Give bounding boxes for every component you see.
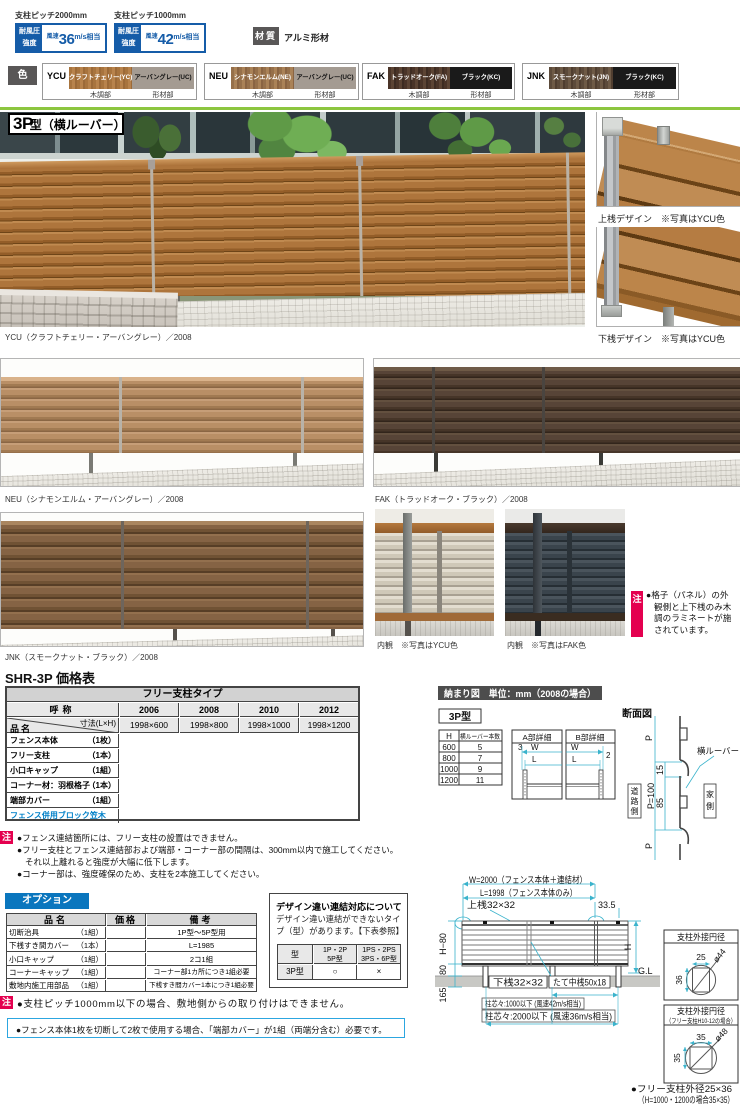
svg-text:柱芯々:1000以下 (風速42m/s相当): 柱芯々:1000以下 (風速42m/s相当): [485, 999, 581, 1009]
svg-text:下桟32×32: 下桟32×32: [493, 977, 543, 988]
svg-text:G.L: G.L: [638, 966, 653, 976]
svg-text:1000: 1000: [440, 765, 458, 774]
svg-text:L: L: [532, 755, 537, 764]
svg-text:H: H: [446, 732, 452, 741]
svg-text:H−80: H−80: [438, 933, 448, 955]
svg-text:W: W: [571, 743, 579, 752]
svg-text:側: 側: [706, 801, 714, 811]
svg-text:（フリー支柱H10-12の場合）: （フリー支柱H10-12の場合）: [666, 1016, 736, 1025]
svg-text:35: 35: [696, 1032, 706, 1042]
svg-text:1200: 1200: [440, 776, 458, 785]
svg-text:●フリー支柱外径25×36: ●フリー支柱外径25×36: [631, 1083, 732, 1094]
svg-text:33.5: 33.5: [598, 900, 616, 910]
svg-text:上桟32×32: 上桟32×32: [467, 899, 515, 910]
svg-text:11: 11: [476, 776, 485, 785]
svg-text:L: L: [572, 755, 577, 764]
svg-text:道: 道: [631, 786, 639, 796]
svg-text:15: 15: [655, 765, 665, 775]
svg-text:36: 36: [674, 975, 684, 985]
svg-text:5: 5: [478, 743, 483, 752]
svg-text:H: H: [623, 944, 633, 951]
svg-text:W=2000（フェンス本体＋連結材）: W=2000（フェンス本体＋連結材）: [469, 874, 587, 885]
svg-text:納まり図 単位：mm（2008の場合）: 納まり図 単位：mm（2008の場合）: [444, 688, 596, 700]
svg-text:P: P: [644, 735, 654, 741]
svg-text:家: 家: [706, 789, 714, 799]
svg-text:W: W: [531, 743, 539, 752]
svg-text:80: 80: [438, 965, 448, 975]
svg-text:支柱外接円径: 支柱外接円径: [677, 1006, 725, 1016]
svg-text:柱芯々:2000以下 (風速36m/s相当): 柱芯々:2000以下 (風速36m/s相当): [485, 1011, 612, 1022]
svg-text:85: 85: [655, 798, 665, 808]
svg-text:7: 7: [478, 754, 483, 763]
svg-text:（H=1000・1200の場合35×35）: （H=1000・1200の場合35×35）: [638, 1094, 734, 1105]
svg-text:断面図: 断面図: [622, 707, 652, 720]
svg-text:9: 9: [478, 765, 483, 774]
svg-text:L=1998（フェンス本体のみ）: L=1998（フェンス本体のみ）: [480, 887, 577, 898]
svg-text:P: P: [644, 843, 654, 849]
svg-text:路: 路: [631, 796, 639, 806]
svg-text:800: 800: [442, 754, 456, 763]
svg-text:B部詳細: B部詳細: [576, 732, 605, 742]
svg-text:3P型: 3P型: [449, 710, 471, 723]
svg-text:2: 2: [606, 751, 611, 760]
svg-text:165: 165: [438, 987, 448, 1002]
svg-text:横ルーバー: 横ルーバー: [697, 746, 739, 756]
svg-text:35: 35: [672, 1053, 682, 1063]
svg-text:25: 25: [696, 952, 706, 962]
svg-text:横ルーバー本数: 横ルーバー本数: [460, 732, 500, 741]
svg-text:側: 側: [631, 806, 639, 816]
svg-text:支柱外接円径: 支柱外接円径: [677, 932, 725, 942]
svg-text:たて中桟50x18: たて中桟50x18: [553, 977, 606, 988]
svg-text:A部詳細: A部詳細: [523, 732, 552, 742]
svg-text:600: 600: [442, 743, 456, 752]
